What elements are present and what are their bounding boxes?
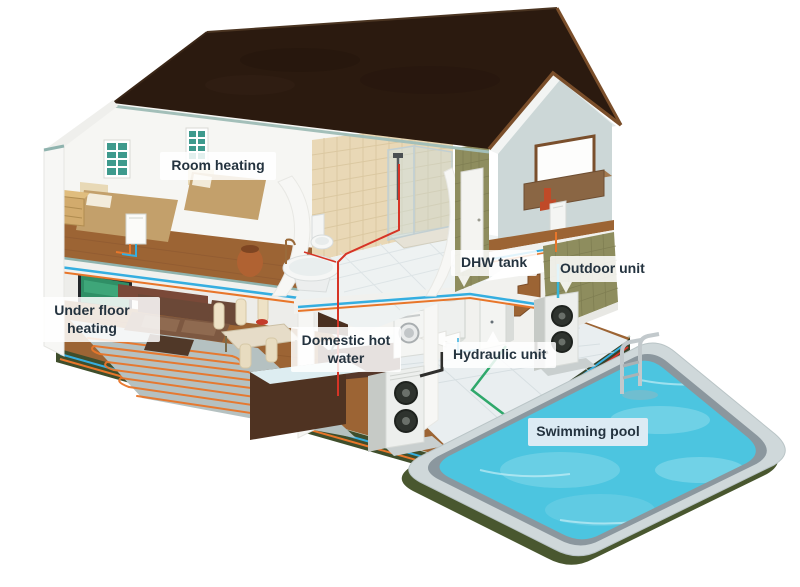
label-room-heating: Room heating (160, 152, 276, 180)
label-swimming-pool: Swimming pool (528, 418, 648, 446)
label-outdoor-unit: Outdoor unit (550, 256, 655, 282)
illustration-canvas (0, 0, 800, 587)
callout-arrow-outdoor-unit (560, 282, 572, 293)
label-under-floor-heating: Under floor heating (24, 297, 160, 342)
bedroom-window (104, 140, 130, 178)
label-dhw-tank: DHW tank (451, 250, 537, 276)
callout-arrow-hydraulic-unit (487, 331, 499, 342)
callout-arrow-dhw-tank (458, 276, 470, 287)
label-domestic-hot-water: Domestic hot water (291, 327, 401, 372)
heat-pump-house-illustration: Room heating Under floor heating Domesti… (0, 0, 800, 587)
label-hydraulic-unit: Hydraulic unit (443, 342, 556, 368)
